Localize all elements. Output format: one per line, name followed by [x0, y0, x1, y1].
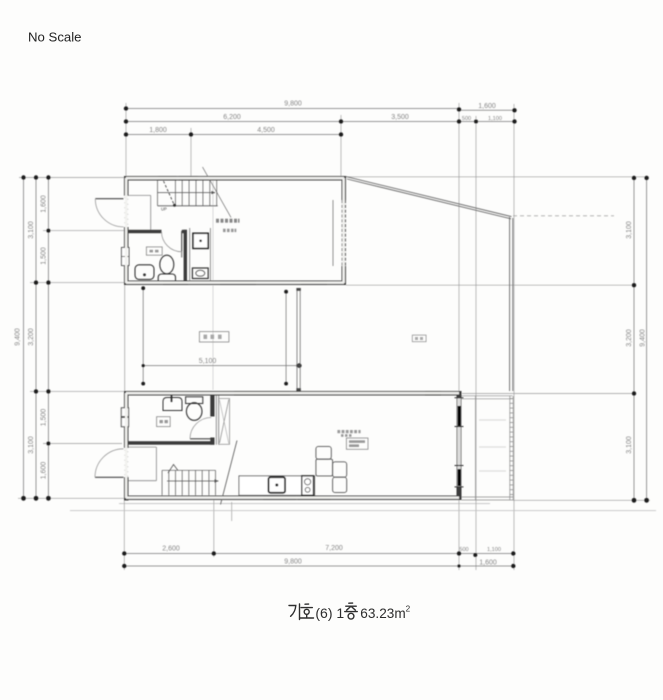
- svg-text:3,100: 3,100: [28, 436, 35, 454]
- svg-text:1,100: 1,100: [488, 116, 502, 122]
- svg-text:1,600: 1,600: [479, 560, 497, 567]
- svg-text:7,200: 7,200: [325, 545, 343, 552]
- svg-text:No Scale: No Scale: [28, 30, 82, 45]
- svg-text:3,200: 3,200: [28, 328, 35, 346]
- svg-text:3,100: 3,100: [626, 436, 633, 454]
- svg-text:3,100: 3,100: [28, 221, 35, 239]
- svg-text:500: 500: [462, 116, 471, 122]
- svg-text:(6) 1: (6) 1: [315, 605, 344, 621]
- svg-text:9,800: 9,800: [284, 101, 302, 108]
- svg-text:9,400: 9,400: [15, 328, 22, 346]
- svg-text:9,400: 9,400: [640, 329, 647, 347]
- svg-text:1,800: 1,800: [149, 127, 167, 134]
- svg-text:5,100: 5,100: [199, 358, 217, 365]
- svg-text:3,100: 3,100: [626, 221, 633, 239]
- svg-text:500: 500: [459, 547, 468, 553]
- svg-text:63.23m: 63.23m: [360, 606, 405, 621]
- svg-text:2,600: 2,600: [162, 546, 180, 553]
- svg-text:1,600: 1,600: [41, 195, 48, 213]
- svg-text:3,200: 3,200: [626, 329, 633, 347]
- svg-text:3,500: 3,500: [391, 114, 409, 121]
- svg-text:4,500: 4,500: [257, 127, 275, 134]
- svg-text:9,800: 9,800: [284, 559, 302, 566]
- svg-text:2: 2: [406, 605, 411, 614]
- svg-text:1,100: 1,100: [487, 547, 501, 553]
- svg-text:1,600: 1,600: [41, 462, 48, 480]
- svg-text:1,600: 1,600: [478, 103, 496, 110]
- svg-text:1,500: 1,500: [41, 247, 48, 265]
- svg-text:6,200: 6,200: [223, 114, 241, 121]
- svg-text:1,500: 1,500: [41, 409, 48, 427]
- svg-text:UP: UP: [161, 207, 167, 212]
